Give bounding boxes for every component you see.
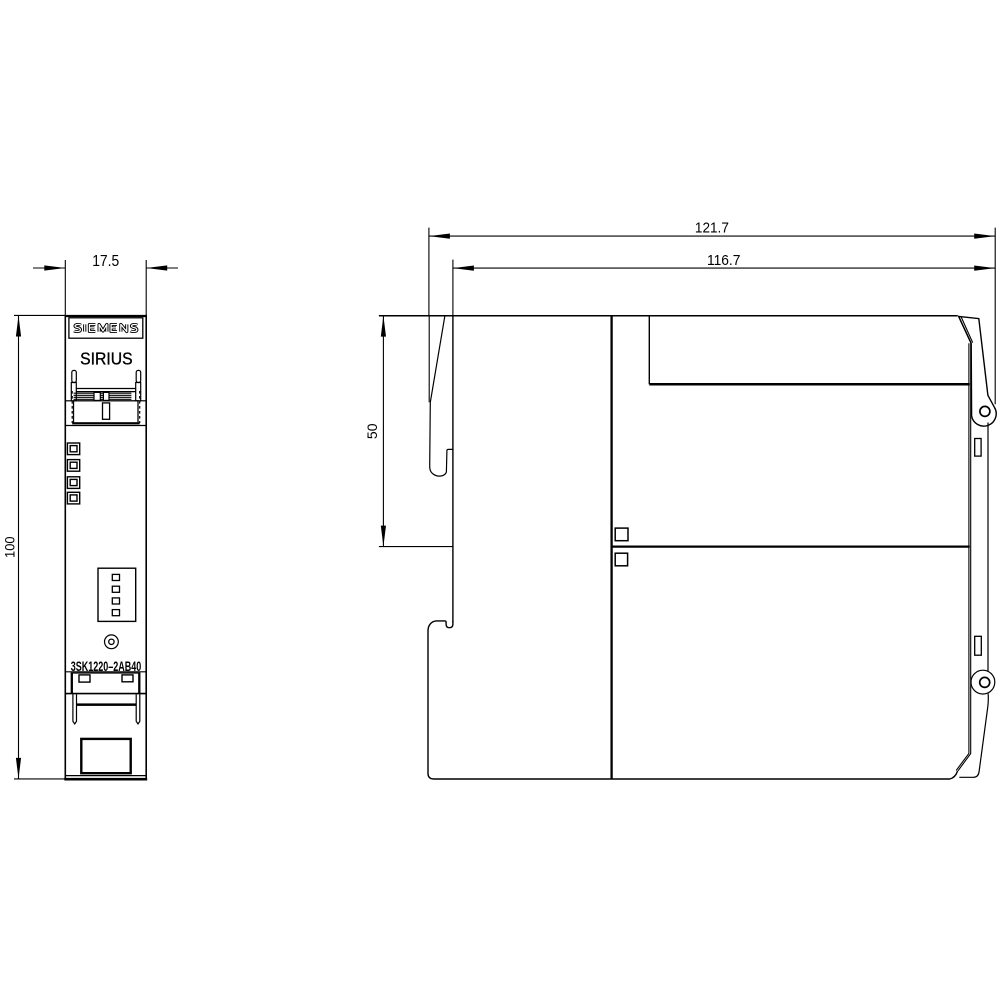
svg-text:50: 50 — [364, 423, 380, 439]
svg-text:100: 100 — [2, 536, 18, 558]
svg-text:121.7: 121.7 — [695, 220, 729, 236]
svg-text:17.5: 17.5 — [92, 253, 119, 270]
svg-text:SIRIUS: SIRIUS — [80, 348, 133, 368]
svg-text:116.7: 116.7 — [707, 253, 741, 269]
